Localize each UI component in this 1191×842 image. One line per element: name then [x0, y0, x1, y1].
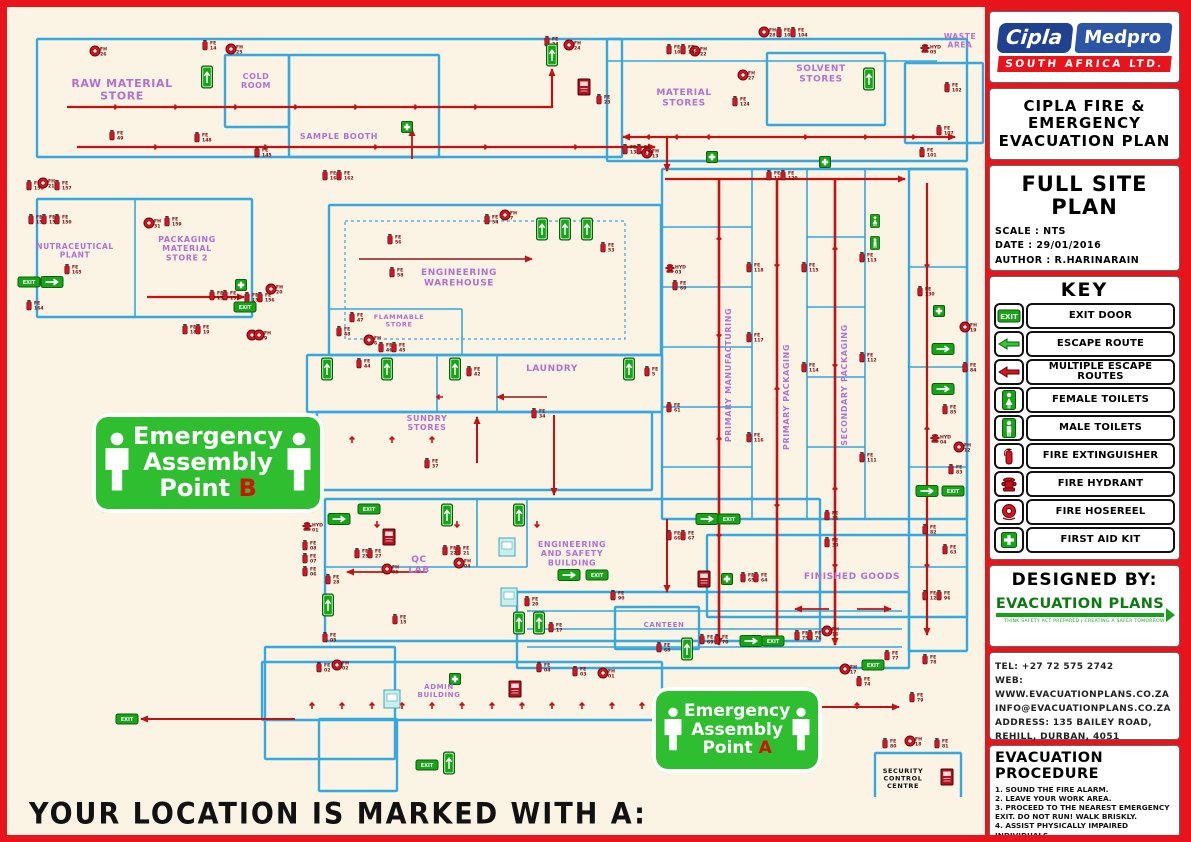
fe-map-icon: FE14 [203, 41, 217, 52]
contact-web: WEB: WWW.EVACUATIONPLANS.CO.ZA [995, 675, 1174, 703]
person-icon [790, 705, 812, 755]
svg-text:FE: FE [117, 131, 123, 137]
svg-text:80: 80 [890, 744, 896, 750]
svg-text:FE: FE [930, 655, 936, 661]
svg-text:65: 65 [748, 578, 754, 584]
svg-text:20: 20 [532, 602, 538, 608]
room-label: SECONDARY PACKAGING [840, 324, 849, 446]
svg-text:FE: FE [210, 41, 216, 47]
fe-map-icon: FE5 [645, 367, 658, 378]
fh-map-icon: FH21 [38, 178, 55, 190]
svg-text:FE: FE [952, 83, 958, 89]
fh-map-icon: FH7 [500, 210, 517, 222]
aid-map-icon [707, 152, 718, 163]
svg-text:01: 01 [608, 674, 614, 680]
fe-map-icon: FE27 [368, 549, 382, 560]
room-label: COLDROOM [241, 72, 271, 90]
svg-text:FE: FE [798, 28, 804, 34]
svg-text:FE: FE [809, 263, 815, 269]
contact-panel: TEL: +27 72 575 2742 WEB: WWW.EVACUATION… [989, 652, 1180, 740]
svg-text:124: 124 [740, 102, 750, 108]
svg-text:20: 20 [276, 290, 282, 296]
svg-text:37: 37 [432, 464, 438, 470]
room-label: PACKAGINGMATERIALSTORE 2 [158, 235, 216, 262]
exh-map-icon: EXIT [942, 486, 964, 496]
teal-map-icon [499, 538, 515, 556]
plan-date: DATE : 29/01/2016 [995, 239, 1174, 253]
logo-subtitle: SOUTH AFRICA LTD. [997, 56, 1172, 72]
svg-text:83: 83 [956, 470, 962, 476]
svg-text:FE: FE [927, 148, 933, 154]
fe-map-icon: FE58 [390, 268, 404, 279]
fe-map-icon: FE114 [802, 363, 819, 374]
fire-hydrant-icon [994, 471, 1024, 497]
fe-map-icon: FE145 [255, 148, 272, 159]
person-icon [284, 432, 314, 494]
contact-tel: TEL: +27 72 575 2742 [995, 661, 1174, 675]
fh-map-icon: FH28 [759, 27, 776, 39]
svg-text:FE: FE [474, 367, 480, 373]
svg-text:63: 63 [950, 550, 956, 556]
fe-map-icon: FE102 [945, 83, 962, 94]
svg-text:FE: FE [867, 353, 873, 359]
svg-text:04: 04 [544, 668, 550, 674]
hyd-map-icon: HYD03 [666, 264, 687, 275]
svg-text:21: 21 [48, 184, 54, 190]
svg-text:14: 14 [210, 46, 216, 52]
svg-text:68: 68 [664, 648, 670, 654]
svg-text:FH: FH [915, 737, 922, 743]
svg-text:FE: FE [892, 651, 898, 657]
teal-map-icon [501, 588, 517, 606]
procedure-step: 2. LEAVE YOUR WORK AREA. [995, 794, 1174, 803]
svg-text:FE: FE [950, 405, 956, 411]
svg-text:46: 46 [386, 348, 392, 354]
svg-text:EXIT: EXIT [23, 280, 36, 286]
fe-map-icon: FE85 [943, 405, 957, 416]
fe-map-icon: FE23 [597, 95, 611, 106]
pnl-map-icon [509, 681, 521, 697]
svg-text:FE: FE [172, 217, 178, 223]
svg-text:FE: FE [262, 148, 268, 154]
fe-map-icon: FE44 [357, 359, 371, 370]
svg-text:30: 30 [832, 543, 838, 549]
fe-map-icon: FE104 [791, 28, 808, 39]
svg-text:47: 47 [357, 318, 363, 324]
svg-text:102: 102 [952, 88, 962, 94]
fe-map-icon: FE63 [943, 545, 957, 556]
fe-map-icon: FE69 [700, 635, 714, 646]
rte-map-icon [932, 384, 954, 395]
exit-door-icon: EXIT [994, 303, 1024, 329]
svg-text:FE: FE [722, 635, 728, 641]
svg-text:02: 02 [324, 668, 330, 674]
room-label: SOLVENTSTORES [796, 64, 846, 84]
svg-text:FE: FE [386, 343, 392, 349]
fe-map-icon: FE46 [379, 343, 393, 354]
svg-text:FE: FE [324, 663, 330, 669]
svg-text:79: 79 [917, 698, 923, 704]
exh-map-icon: EXIT [718, 514, 740, 524]
svg-text:HYD: HYD [930, 45, 941, 51]
svg-text:FE: FE [49, 215, 55, 221]
fe-map-icon: FE164 [27, 301, 44, 312]
svg-text:145: 145 [262, 153, 272, 159]
svg-text:FH: FH [342, 661, 349, 667]
svg-text:FE: FE [252, 293, 258, 299]
svg-text:25: 25 [236, 50, 242, 56]
svg-text:64: 64 [761, 578, 767, 584]
svg-text:117: 117 [754, 338, 764, 344]
fe-map-icon: FE78 [923, 655, 937, 666]
svg-text:FE: FE [330, 171, 336, 177]
svg-text:06: 06 [310, 572, 316, 578]
fe-map-icon: FE64 [754, 573, 768, 584]
escape-route-icon [994, 331, 1024, 357]
svg-text:FE: FE [217, 291, 223, 297]
svg-text:FE: FE [809, 363, 815, 369]
fe-map-icon: FE107 [937, 126, 954, 137]
svg-text:5: 5 [652, 372, 655, 378]
wcm-map-icon [871, 237, 880, 250]
fe-map-icon: FE65 [741, 573, 755, 584]
svg-text:EXIT: EXIT [239, 305, 252, 311]
svg-text:19: 19 [970, 328, 976, 334]
fe-map-icon: FE21 [456, 546, 470, 557]
svg-text:21: 21 [463, 551, 469, 557]
fh-map-icon: FH17 [840, 664, 857, 676]
svg-text:FE: FE [400, 615, 406, 621]
fe-map-icon: FE18 [183, 325, 197, 336]
fe-map-icon: FE80 [883, 739, 897, 750]
svg-text:FE: FE [604, 95, 610, 101]
hyd-map-icon: HYD01 [303, 522, 324, 533]
svg-text:FE: FE [864, 677, 870, 683]
svg-text:111: 111 [867, 458, 877, 464]
rte-map-icon [328, 514, 350, 525]
fe-map-icon: FE48 [337, 327, 351, 338]
svg-text:FH: FH [464, 559, 471, 565]
svg-text:61: 61 [674, 408, 680, 414]
key-row-exit-door: EXIT EXIT DOOR [994, 303, 1175, 329]
exv-map-icon [560, 218, 571, 240]
fh-map-icon: FH18 [905, 736, 922, 748]
fe-map-icon: FE03 [573, 667, 587, 678]
exv-map-icon [582, 218, 593, 240]
svg-text:112: 112 [867, 358, 877, 364]
room-label: RAW MATERIALSTORE [71, 77, 172, 103]
svg-text:FE: FE [330, 633, 336, 639]
svg-text:EXIT: EXIT [363, 507, 376, 513]
fe-map-icon: FE118 [747, 263, 764, 274]
fe-map-icon: FE54 [485, 215, 499, 226]
key-row-escape-route: ESCAPE ROUTE [994, 331, 1175, 357]
rte-map-icon [916, 486, 938, 497]
svg-text:FE: FE [230, 291, 236, 297]
svg-text:60: 60 [680, 286, 686, 292]
aid-map-icon [934, 306, 945, 317]
contact-email: INFO@EVACUATIONPLANS.CO.ZA [995, 703, 1174, 717]
fe-map-icon: FE25 [355, 549, 369, 560]
fe-map-icon: FE112 [860, 353, 877, 364]
fh-map-icon: FH27 [738, 70, 755, 82]
svg-text:164: 164 [34, 306, 44, 312]
svg-text:48: 48 [344, 332, 350, 338]
fh-map-icon: FH26 [90, 46, 107, 58]
svg-text:FH: FH [964, 443, 971, 449]
svg-text:115: 115 [809, 268, 819, 274]
svg-text:53: 53 [608, 248, 614, 254]
svg-text:22: 22 [700, 52, 706, 58]
svg-text:EXIT: EXIT [723, 517, 736, 523]
svg-text:17: 17 [850, 670, 856, 676]
fe-map-icon: FE148 [195, 133, 212, 144]
procedure-step: 4. ASSIST PHYSICALLY IMPAIRED INDIVIDUAL… [995, 821, 1174, 839]
fe-map-icon: FE19 [196, 325, 210, 336]
fe-map-icon: FE61 [667, 403, 681, 414]
svg-text:FE: FE [761, 573, 767, 579]
teal-map-icon [384, 690, 400, 708]
svg-text:FE: FE [754, 333, 760, 339]
assembly-letter: A [759, 738, 772, 758]
svg-text:75: 75 [802, 636, 808, 642]
rte-map-icon [41, 277, 63, 288]
svg-text:FE: FE [552, 37, 558, 43]
pnl-map-icon [578, 79, 590, 95]
fe-map-icon: FE17 [549, 623, 563, 634]
svg-text:FH: FH [392, 565, 399, 571]
fe-map-icon: FE08 [303, 541, 317, 552]
fe-map-icon: FE76 [808, 631, 822, 642]
designed-by-panel: DESIGNED BY: EVACUATION PLANS THINK SAFE… [989, 565, 1180, 647]
fe-map-icon: FE90 [611, 591, 625, 602]
svg-text:FH: FH [510, 211, 517, 217]
svg-text:49: 49 [117, 136, 123, 142]
fe-map-icon: FE30 [825, 538, 839, 549]
fe-map-icon: FE77 [885, 651, 899, 662]
fe-map-icon: FE75 [795, 631, 809, 642]
svg-text:FE: FE [630, 145, 636, 151]
svg-text:FE: FE [754, 433, 760, 439]
exv-map-icon [537, 218, 548, 240]
assembly-sign-text: Emergency Assembly Point A [684, 702, 790, 757]
svg-text:FH: FH [700, 47, 707, 53]
room-label: SECURITYCONTROLCENTRE [883, 767, 924, 790]
room-label: QCLAB [408, 555, 429, 575]
svg-text:FE: FE [202, 133, 208, 139]
svg-text:FE: FE [544, 663, 550, 669]
plan-title: CIPLA FIRE & EMERGENCY EVACUATION PLAN [989, 88, 1180, 160]
procedure-title: EVACUATION PROCEDURE [995, 750, 1174, 782]
fe-map-icon: FE150 [55, 215, 72, 226]
exh-map-icon: EXIT [762, 636, 784, 646]
emergency-assembly-point-a-sign: Emergency Assembly Point A [652, 687, 822, 773]
plan-info-panel: FULL SITE PLAN SCALE : NTS DATE : 29/01/… [989, 165, 1180, 271]
room-label: ENGINEERINGWAREHOUSE [421, 268, 497, 288]
svg-text:12: 12 [964, 448, 970, 454]
fire-hosereel-icon [994, 499, 1024, 525]
fe-map-icon: FE66 [667, 531, 681, 542]
fire-extinguisher-icon [994, 443, 1024, 469]
svg-text:FE: FE [450, 546, 456, 552]
svg-text:HYD: HYD [312, 523, 323, 529]
exv-map-icon [202, 66, 213, 88]
svg-text:82: 82 [930, 530, 936, 536]
fh-map-icon: FH01 [598, 668, 615, 680]
svg-text:FE: FE [688, 45, 694, 51]
svg-text:16: 16 [832, 632, 838, 638]
svg-text:FH: FH [374, 336, 381, 342]
fe-map-icon: FE111 [860, 453, 877, 464]
assembly-sign-text: Emergency Assembly Point B [132, 424, 284, 502]
fh-map-icon: FH16 [822, 626, 839, 638]
room-label: LAUNDRY [526, 364, 578, 374]
svg-text:FE: FE [832, 538, 838, 544]
svg-text:19: 19 [203, 330, 209, 336]
svg-text:01: 01 [312, 528, 318, 534]
fe-map-icon: FE34 [532, 409, 546, 420]
fe-map-icon: FE70 [715, 635, 729, 646]
exh-map-icon: EXIT [416, 760, 438, 770]
svg-text:28: 28 [333, 580, 339, 586]
svg-text:FE: FE [310, 567, 316, 573]
svg-text:FH: FH [276, 285, 283, 291]
exh-map-icon: EXIT [234, 302, 256, 312]
arrow-right-icon [1166, 608, 1175, 622]
svg-text:FE: FE [190, 325, 196, 331]
svg-text:FE: FE [754, 263, 760, 269]
fe-map-icon: FE07 [303, 554, 317, 565]
svg-text:FE: FE [608, 243, 614, 249]
svg-text:74: 74 [864, 682, 870, 688]
svg-text:EXIT: EXIT [121, 717, 134, 723]
exv-map-icon [514, 612, 525, 634]
svg-text:FE: FE [784, 28, 790, 34]
fe-map-icon: FE79 [910, 693, 924, 704]
wcf-map-icon [871, 215, 880, 228]
svg-text:28: 28 [769, 33, 775, 39]
svg-text:FE: FE [344, 327, 350, 333]
svg-text:04: 04 [464, 564, 470, 570]
svg-text:FE: FE [925, 287, 931, 293]
fe-map-icon: FE02 [317, 663, 331, 674]
svg-text:FE: FE [664, 643, 670, 649]
fe-map-icon: FE116 [747, 433, 764, 444]
key-row-fire-extinguisher: FIRE EXTINGUISHER [994, 443, 1175, 469]
svg-text:25: 25 [362, 554, 368, 560]
room-label: ADMINBUILDING [418, 683, 461, 699]
procedure-step: 1. SOUND THE FIRE ALARM. [995, 785, 1174, 794]
svg-text:FE: FE [463, 546, 469, 552]
rte-map-icon [558, 570, 580, 581]
cipla-wordmark: Cipla [997, 23, 1074, 53]
exh-map-icon: EXIT [116, 714, 138, 724]
svg-text:FE: FE [556, 623, 562, 629]
contact-address-line1: ADDRESS: 135 BAILEY ROAD, [995, 717, 1174, 731]
svg-text:FE: FE [62, 215, 68, 221]
fh-map-icon: FH12 [954, 442, 971, 454]
room-label: WASTEAREA [944, 32, 976, 50]
fe-map-icon: FE117 [747, 333, 764, 344]
evacuation-plans-logo: EVACUATION PLANS [995, 596, 1174, 617]
site-map-drawing: FH26FE14FH25FE49FE148FE145FE24FH24FE23FE… [7, 7, 985, 797]
svg-text:22: 22 [450, 551, 456, 557]
svg-text:153: 153 [230, 296, 240, 302]
svg-text:05: 05 [392, 570, 398, 576]
fe-map-icon: FE60 [673, 281, 687, 292]
svg-text:FH: FH [832, 627, 839, 633]
svg-text:FE: FE [492, 215, 498, 221]
room-label: CANTEEN [644, 621, 685, 629]
svg-text:27: 27 [375, 554, 381, 560]
fe-map-icon: FE06 [303, 567, 317, 578]
fe-map-icon: FE124 [733, 97, 750, 108]
fh-map-icon: FH19 [960, 322, 977, 334]
svg-text:23: 23 [604, 100, 610, 106]
svg-text:FE: FE [532, 597, 538, 603]
svg-text:114: 114 [809, 368, 819, 374]
svg-text:148: 148 [202, 138, 212, 144]
svg-text:FE: FE [890, 739, 896, 745]
exh-map-icon: EXIT [18, 277, 40, 287]
fe-map-icon: FE67 [681, 531, 695, 542]
fe-map-icon: FE56 [388, 235, 402, 246]
fe-map-icon: FE81 [935, 739, 949, 750]
svg-text:77: 77 [892, 656, 898, 662]
room-label: PRIMARY MANUFACTURING [724, 308, 733, 442]
fe-map-icon: FE130 [918, 287, 935, 298]
rte-map-icon [740, 636, 762, 647]
svg-text:90: 90 [618, 596, 624, 602]
evacuation-plan-page: FH26FE14FH25FE49FE148FE145FE24FH24FE23FE… [0, 0, 1191, 842]
fh-map-icon: FH20 [266, 284, 283, 296]
room-label: SUNDRYSTORES [407, 414, 448, 432]
svg-text:FH: FH [970, 323, 977, 329]
plan-name: FULL SITE PLAN [995, 173, 1174, 219]
your-location-banner: YOUR LOCATION IS MARKED WITH A: [29, 798, 647, 831]
designed-by-title: DESIGNED BY: [995, 570, 1174, 590]
fe-map-icon: FE83 [949, 465, 963, 476]
svg-text:FE: FE [375, 549, 381, 555]
fe-map-icon: FE37 [425, 459, 439, 470]
svg-text:FE: FE [815, 631, 821, 637]
fh-map-icon: FH05 [382, 564, 399, 576]
svg-text:56: 56 [395, 240, 401, 246]
hyd-map-icon: HYD05 [921, 44, 942, 55]
svg-text:EXIT: EXIT [1000, 313, 1018, 321]
svg-text:FE: FE [362, 549, 368, 555]
aid-map-icon [820, 157, 831, 168]
person-icon [102, 432, 132, 494]
svg-text:136: 136 [644, 150, 654, 156]
medpro-wordmark: Medpro [1074, 23, 1172, 53]
svg-text:FE: FE [944, 126, 950, 132]
exv-map-icon [534, 612, 545, 634]
svg-text:66: 66 [674, 536, 680, 542]
svg-text:FH: FH [608, 669, 615, 675]
svg-text:104: 104 [798, 33, 808, 39]
room-label: NUTRACEUTICALPLANT [36, 242, 114, 260]
svg-text:24: 24 [574, 46, 580, 52]
svg-text:FE: FE [674, 403, 680, 409]
svg-text:101: 101 [927, 153, 937, 159]
svg-text:113: 113 [867, 258, 877, 264]
svg-text:FE: FE [36, 215, 42, 221]
svg-text:FE: FE [707, 635, 713, 641]
exh-map-icon: EXIT [358, 504, 380, 514]
svg-text:EXIT: EXIT [947, 489, 960, 495]
svg-text:EXIT: EXIT [867, 663, 880, 669]
